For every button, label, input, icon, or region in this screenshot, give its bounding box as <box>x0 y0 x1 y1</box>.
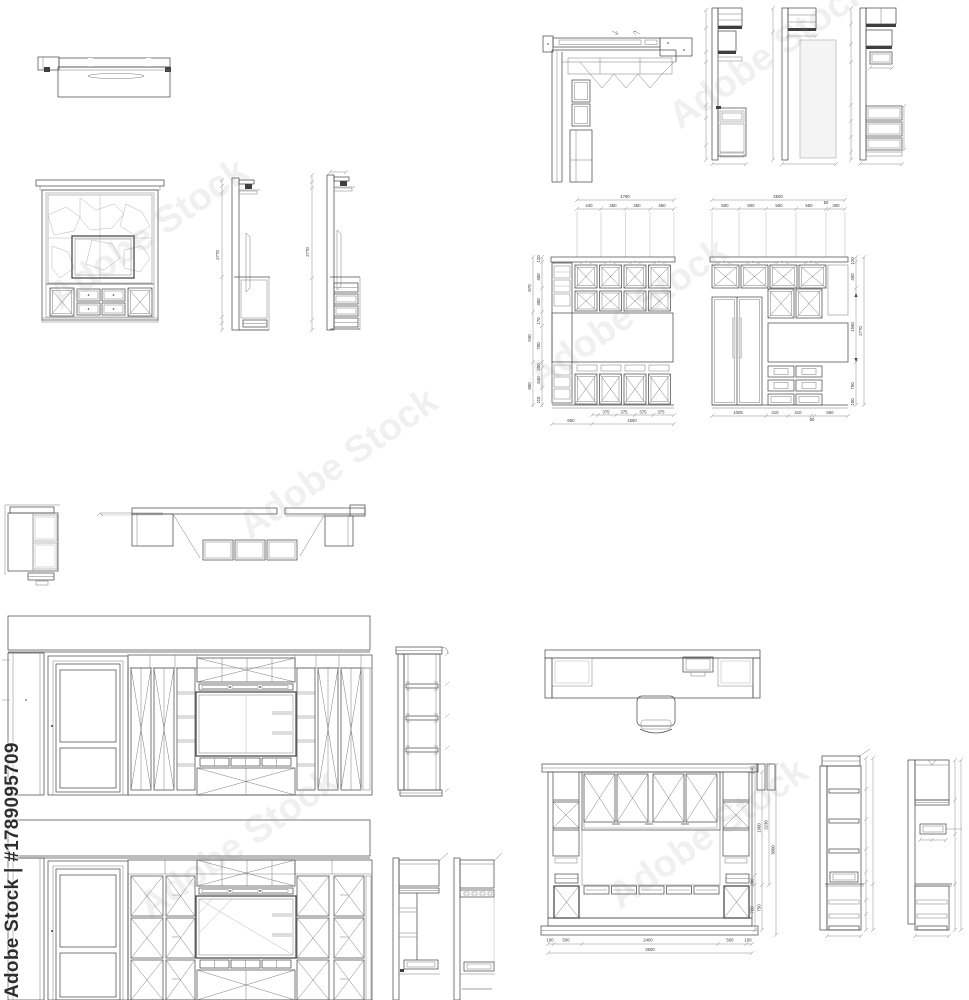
monitor <box>683 657 713 676</box>
desk-bottom-dim: 500 <box>726 938 734 943</box>
elev1-left-dim: 400 <box>536 298 541 306</box>
ghost-watermarks: Adobe Stock Adobe Stock Adobe Stock Adob… <box>41 0 876 927</box>
chair <box>637 696 675 733</box>
elev1-left-dim: 170 <box>536 317 541 325</box>
small-section-2 <box>454 853 502 1000</box>
stock-id-watermark: Adobe Stock | #1789095709 <box>2 678 24 998</box>
elev2-right-dim: 750 <box>850 382 855 390</box>
elev1-left-dim: 110 <box>536 396 541 403</box>
elev1-bottom-total: 650 <box>567 418 575 423</box>
desk-right-dim: 200 <box>750 878 755 886</box>
elev2-xdoor-row <box>768 289 822 318</box>
elev1-base-row <box>575 365 671 404</box>
elev2-bottom-dim: 650 <box>826 410 834 415</box>
elev1-top-total: 1790 <box>620 194 630 199</box>
elev1-bottom-dim: 375 <box>657 410 665 415</box>
elev2-right-dim: 450 <box>850 273 855 281</box>
kitchen-elevation-2: 2500 500 500 550 550 50 300 <box>710 194 866 422</box>
wall-elevation-2 <box>8 820 372 1000</box>
elev1-bottom-dim: 375 <box>620 410 628 415</box>
desk-bottom-dim: 100 <box>744 938 752 943</box>
ghost-watermark: Adobe Stock <box>661 0 876 137</box>
elev2-backsplash <box>768 323 848 362</box>
corner-cabinet-plan <box>5 505 60 585</box>
ghost-watermark: Adobe Stock <box>131 759 346 927</box>
tall-section-1 <box>820 749 875 938</box>
elev2-tall-cabinet <box>712 297 762 405</box>
desk-right-dim: 750 <box>757 904 762 912</box>
elev2-right-dim: 1560 <box>850 322 855 332</box>
elev1-bottom-total: 1550 <box>627 418 637 423</box>
cad-canvas: 2770 2770 <box>0 0 969 1000</box>
desk-right-dim: 3000 <box>771 845 776 855</box>
elev2-dim: 500 <box>747 203 755 208</box>
elev2-bottom-dim: 50 <box>810 417 815 422</box>
elev2-dim: 50 <box>824 200 829 205</box>
ghost-watermark: Adobe Stock <box>601 749 816 917</box>
elev2-top-total: 2500 <box>773 194 783 199</box>
small-section-1 <box>393 853 448 1000</box>
elev1-bottom-dim: 375 <box>639 410 647 415</box>
desk-bottom-total: 3600 <box>645 947 655 952</box>
elev1-left-dim: 800 <box>527 382 532 390</box>
elev1-left-dim: 870 <box>527 284 532 292</box>
elev2-right-dim: 120 <box>850 257 855 265</box>
kitchen-section-3 <box>849 6 906 166</box>
ghost-watermark: Adobe Stock <box>231 379 446 547</box>
desk-right-dim: 720 <box>750 906 755 914</box>
tall-section-2 <box>908 758 963 938</box>
elev1-dim: 440 <box>585 203 593 208</box>
elev1-left-dim: 930 <box>527 334 532 342</box>
elev1-left-dim: 400 <box>536 273 541 281</box>
desk-plan-view <box>545 650 760 733</box>
desk-bottom-dim: 500 <box>562 938 570 943</box>
desk-left-tower <box>553 772 579 918</box>
section-b-height: 2770 <box>305 247 310 257</box>
elev2-right-total: 2770 <box>858 326 863 336</box>
drawing-sheet: { "watermark": { "side_text": "Adobe Sto… <box>0 0 969 1000</box>
elev2-drawer-stack <box>768 366 822 405</box>
section-a-height: 2770 <box>215 250 220 260</box>
elev2-bottom-dim: 410 <box>771 410 779 415</box>
elev1-bottom-dim: 375 <box>602 410 610 415</box>
glass-door-2 <box>48 861 128 1000</box>
elev2-bottom-dim: 1005 <box>733 410 743 415</box>
tv-section-b: 2770 <box>305 170 360 332</box>
bookcase-section <box>396 647 449 796</box>
desk-right-dim: 140 <box>750 766 755 774</box>
elev2-dim: 500 <box>721 203 729 208</box>
elev2-dim: 550 <box>775 203 783 208</box>
elev1-dim: 450 <box>658 203 666 208</box>
elev2-right-dim: 100 <box>850 398 855 406</box>
desk-bottom-dim: 2400 <box>643 938 653 943</box>
desk-bottom-dim: 100 <box>546 938 554 943</box>
tv-unit-plan-view <box>38 57 171 97</box>
wardrobe-wall-1 <box>128 655 372 795</box>
elev1-dim: 450 <box>633 203 641 208</box>
elev2-dim: 550 <box>805 203 813 208</box>
elev2-bottom-dim: 410 <box>794 410 802 415</box>
glass-door-1 <box>48 656 128 795</box>
elev1-left-dim: 120 <box>536 255 541 263</box>
elev2-dim: 300 <box>832 203 840 208</box>
base-right-door <box>128 288 152 316</box>
desk-right-dim: 3230 <box>764 820 769 830</box>
elev1-dim: 450 <box>609 203 617 208</box>
